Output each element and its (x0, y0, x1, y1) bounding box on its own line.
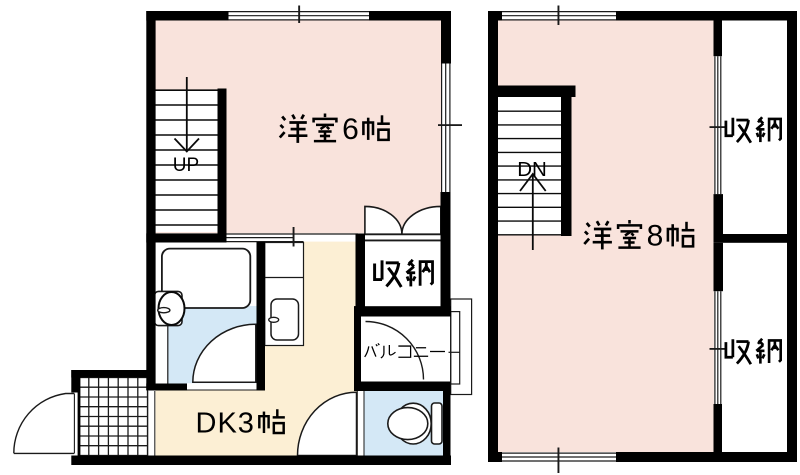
svg-text:8: 8 (647, 220, 664, 253)
svg-text:UP: UP (173, 155, 199, 176)
svg-text:DN: DN (517, 158, 547, 181)
svg-text:DK3: DK3 (196, 408, 255, 440)
svg-text:6: 6 (342, 113, 359, 146)
